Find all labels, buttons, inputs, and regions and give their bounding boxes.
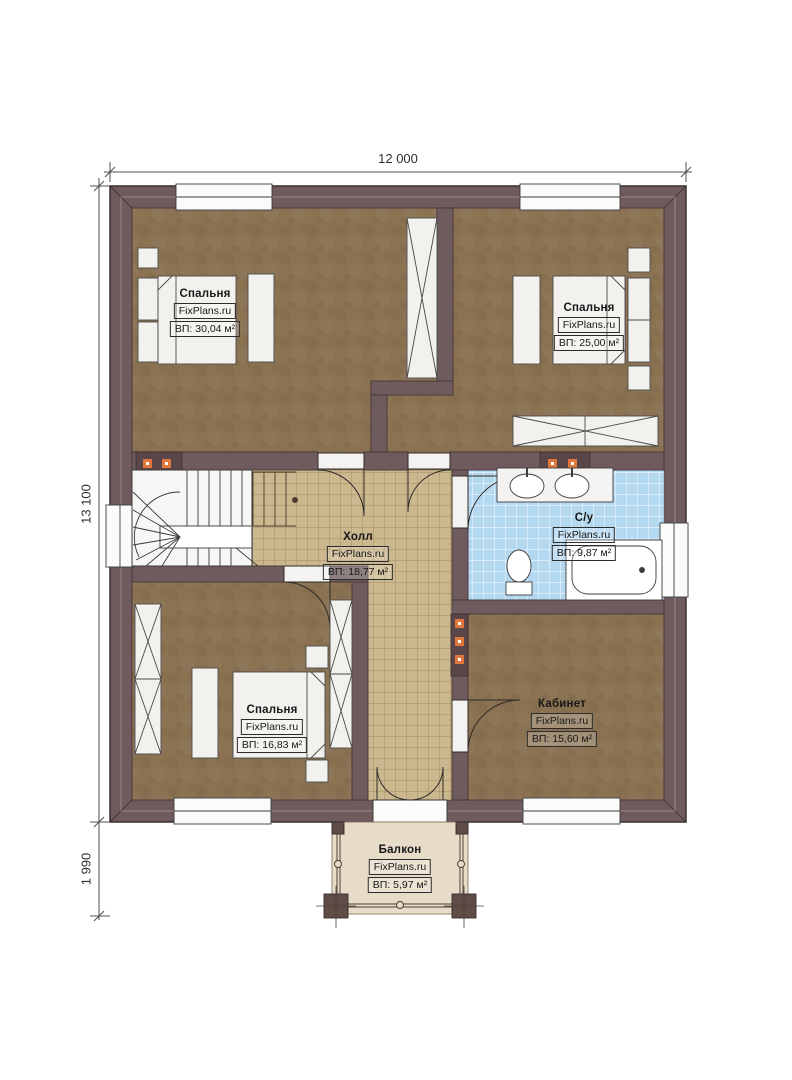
window (660, 523, 688, 597)
room-label-balcony: Балкон FixPlans.ru ВП: 5,97 м² (368, 844, 432, 893)
vanity-double-sink (497, 468, 613, 502)
window (523, 798, 620, 824)
nightstand (628, 366, 650, 390)
room-label-hall: Холл FixPlans.ru ВП: 18,77 м² (323, 531, 393, 580)
room-area: ВП: 9,87 м² (552, 545, 616, 561)
window (176, 184, 272, 210)
nightstand (628, 248, 650, 272)
room-label-bedroom-top-right: Спальня FixPlans.ru ВП: 25,00 м² (554, 302, 624, 351)
room-label-bathroom: С/у FixPlans.ru ВП: 9,87 м² (552, 512, 616, 561)
wardrobe-closet (135, 604, 161, 754)
brand-watermark: FixPlans.ru (369, 859, 432, 875)
nightstand (138, 248, 158, 268)
brand-watermark: FixPlans.ru (553, 527, 616, 543)
nightstand (628, 278, 650, 362)
room-label-bedroom-bottom-left: Спальня FixPlans.ru ВП: 16,83 м² (237, 704, 307, 753)
window (106, 505, 134, 567)
room-name: Спальня (237, 704, 307, 716)
room-name: Спальня (554, 302, 624, 314)
room-name: Холл (323, 531, 393, 543)
room-area: ВП: 15,60 м² (527, 731, 597, 747)
wardrobe-closet (407, 218, 437, 378)
room-label-bedroom-top-left: Спальня FixPlans.ru ВП: 30,04 м² (170, 288, 240, 337)
room-area: ВП: 25,00 м² (554, 335, 624, 351)
dimension-width-label: 12 000 (378, 151, 418, 166)
room-name: Спальня (170, 288, 240, 300)
dresser (192, 668, 218, 758)
brand-watermark: FixPlans.ru (174, 303, 237, 319)
window (174, 798, 271, 824)
nightstand (306, 646, 328, 668)
brand-watermark: FixPlans.ru (558, 317, 621, 333)
toilet (506, 550, 532, 595)
nightstand (306, 760, 328, 782)
room-area: ВП: 16,83 м² (237, 737, 307, 753)
wardrobe-closet (330, 600, 352, 748)
wardrobe-closet (513, 416, 658, 446)
room-label-office: Кабинет FixPlans.ru ВП: 15,60 м² (527, 698, 597, 747)
room-area: ВП: 30,04 м² (170, 321, 240, 337)
radiator (451, 614, 468, 676)
window (520, 184, 620, 210)
dresser (248, 274, 274, 362)
room-area: ВП: 18,77 м² (323, 564, 393, 580)
wardrobe (513, 276, 540, 364)
room-name: Балкон (368, 844, 432, 856)
brand-watermark: FixPlans.ru (531, 713, 594, 729)
room-area: ВП: 5,97 м² (368, 877, 432, 893)
nightstand (138, 322, 158, 362)
dimension-height-label: 13 100 (79, 484, 94, 524)
room-name: Кабинет (527, 698, 597, 710)
nightstand (138, 278, 158, 320)
dimension-balcony-label: 1 990 (79, 853, 94, 886)
brand-watermark: FixPlans.ru (241, 719, 304, 735)
room-name: С/у (552, 512, 616, 524)
brand-watermark: FixPlans.ru (327, 546, 390, 562)
floor-plan-page: Спальня FixPlans.ru ВП: 30,04 м² Спальня… (0, 0, 792, 1080)
